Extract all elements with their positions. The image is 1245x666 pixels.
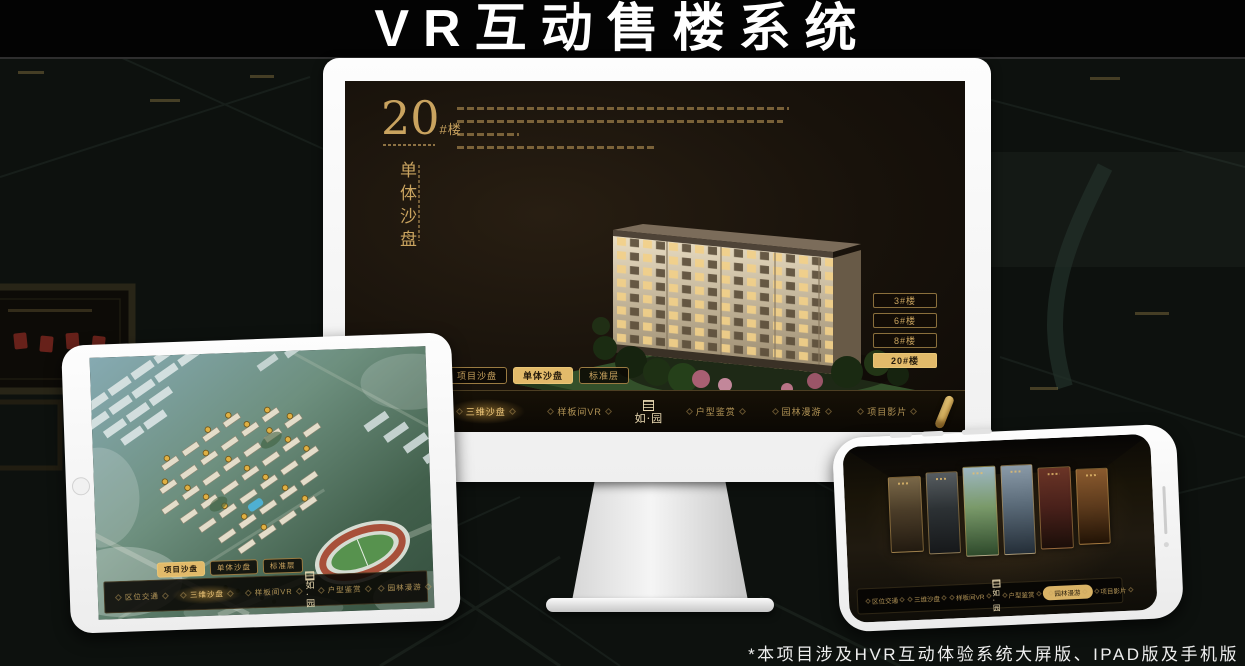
scene-card-garage[interactable] <box>925 471 961 554</box>
nav-item-floorplan[interactable]: 户型鉴赏 <box>683 405 749 418</box>
building-button-20[interactable]: 20#楼 <box>873 353 937 368</box>
tab-project-sandtable[interactable]: 项目沙盘 <box>157 561 205 578</box>
nav-item-3d-sandtable[interactable]: 三维沙盘 <box>447 399 525 424</box>
scene-card-lobby[interactable] <box>888 476 924 553</box>
phone-camera-dot <box>1164 542 1169 547</box>
poster-canvas: VR互动售楼系统 20#楼 单体沙盘 <box>0 0 1245 666</box>
tablet-home-button[interactable] <box>72 477 91 496</box>
nav-item-project-film[interactable]: 项目影片 <box>1092 585 1134 597</box>
tablet-screen: 项目沙盘 单体沙盘 标准层 区位交通 三维沙盘 样板间VR 如·园 户型鉴赏 园… <box>90 346 435 620</box>
brand-seal-icon <box>643 400 654 411</box>
headline-subtitle-vertical: 单体沙盘 <box>394 161 419 253</box>
text-line <box>457 133 519 136</box>
monitor-stand-neck <box>572 480 748 601</box>
nav-item-garden-roam[interactable]: 园林漫游 <box>1042 584 1093 600</box>
building-number: 20 <box>381 91 440 145</box>
text-line <box>457 146 655 149</box>
scroll-handle-icon[interactable] <box>934 394 955 429</box>
scene-card-building[interactable] <box>1000 464 1036 555</box>
brand-seal-icon <box>305 571 314 580</box>
subtitle-english-caption <box>418 165 420 241</box>
phone-volume-button[interactable] <box>922 431 944 437</box>
footnote-text: *本项目涉及HVR互动体验系统大屏版、IPAD版及手机版 <box>748 640 1239 665</box>
tablet-device: 项目沙盘 单体沙盘 标准层 区位交通 三维沙盘 样板间VR 如·园 户型鉴赏 园… <box>61 332 461 633</box>
phone-speaker-slot <box>1162 486 1167 534</box>
nav-item-location-traffic[interactable]: 区位交通 <box>864 595 906 607</box>
nav-item-project-film[interactable]: 项目影片 <box>854 405 920 418</box>
scene-card-interior[interactable] <box>1075 468 1111 545</box>
brand-logo-text: 如·园 <box>635 413 664 424</box>
scene-card-strip <box>887 458 1111 564</box>
nav-item-model-room-vr[interactable]: 样板间VR <box>242 585 306 598</box>
building-button-3[interactable]: 3#楼 <box>873 293 937 308</box>
tab-single-sandtable[interactable]: 单体沙盘 <box>210 559 258 576</box>
phone-power-button[interactable] <box>962 429 992 435</box>
building-button-8[interactable]: 8#楼 <box>873 333 937 348</box>
page-title: VR互动售楼系统 <box>374 3 870 55</box>
nav-item-model-room-vr[interactable]: 样板间VR <box>544 405 615 418</box>
tab-single-sandtable[interactable]: 单体沙盘 <box>513 367 573 384</box>
monitor-tab-row: 项目沙盘 单体沙盘 标准层 <box>447 367 629 384</box>
nav-item-model-room-vr[interactable]: 样板间VR <box>948 591 993 603</box>
brand-logo: 如·园 <box>635 400 664 424</box>
tab-standard-floor[interactable]: 标准层 <box>263 558 303 574</box>
text-line <box>457 120 783 123</box>
building-selector: 3#楼 6#楼 8#楼 20#楼 <box>873 293 937 368</box>
building-headline: 20#楼 <box>381 95 462 146</box>
scene-card-garden[interactable] <box>962 466 998 557</box>
nav-item-floorplan[interactable]: 户型鉴赏 <box>1000 589 1042 601</box>
tab-project-sandtable[interactable]: 项目沙盘 <box>447 367 507 384</box>
building-button-6[interactable]: 6#楼 <box>873 313 937 328</box>
nav-item-3d-sandtable[interactable]: 三维沙盘 <box>172 583 243 604</box>
nav-item-garden-roam[interactable]: 园林漫游 <box>374 581 434 594</box>
nav-item-location-traffic[interactable]: 区位交通 <box>112 590 172 603</box>
phone-volume-button[interactable] <box>890 432 912 438</box>
phone-screen: 区位交通 三维沙盘 样板间VR 如·园 户型鉴赏 园林漫游 项目影片 <box>842 434 1157 623</box>
tab-standard-floor[interactable]: 标准层 <box>579 367 629 384</box>
scene-card-autumn[interactable] <box>1037 466 1073 549</box>
nav-item-3d-sandtable[interactable]: 三维沙盘 <box>906 593 948 605</box>
text-line <box>457 107 789 110</box>
nav-item-floorplan[interactable]: 户型鉴赏 <box>315 583 375 596</box>
phone-device: 区位交通 三维沙盘 样板间VR 如·园 户型鉴赏 园林漫游 项目影片 <box>832 424 1184 633</box>
phone-nav-bar: 区位交通 三维沙盘 样板间VR 如·园 户型鉴赏 园林漫游 项目影片 <box>857 577 1124 615</box>
nav-item-garden-roam[interactable]: 园林漫游 <box>769 405 835 418</box>
description-paragraph <box>457 107 789 159</box>
monitor-stand-base <box>546 598 774 612</box>
title-bar: VR互动售楼系统 <box>0 0 1245 59</box>
brand-seal-icon <box>992 579 1000 587</box>
